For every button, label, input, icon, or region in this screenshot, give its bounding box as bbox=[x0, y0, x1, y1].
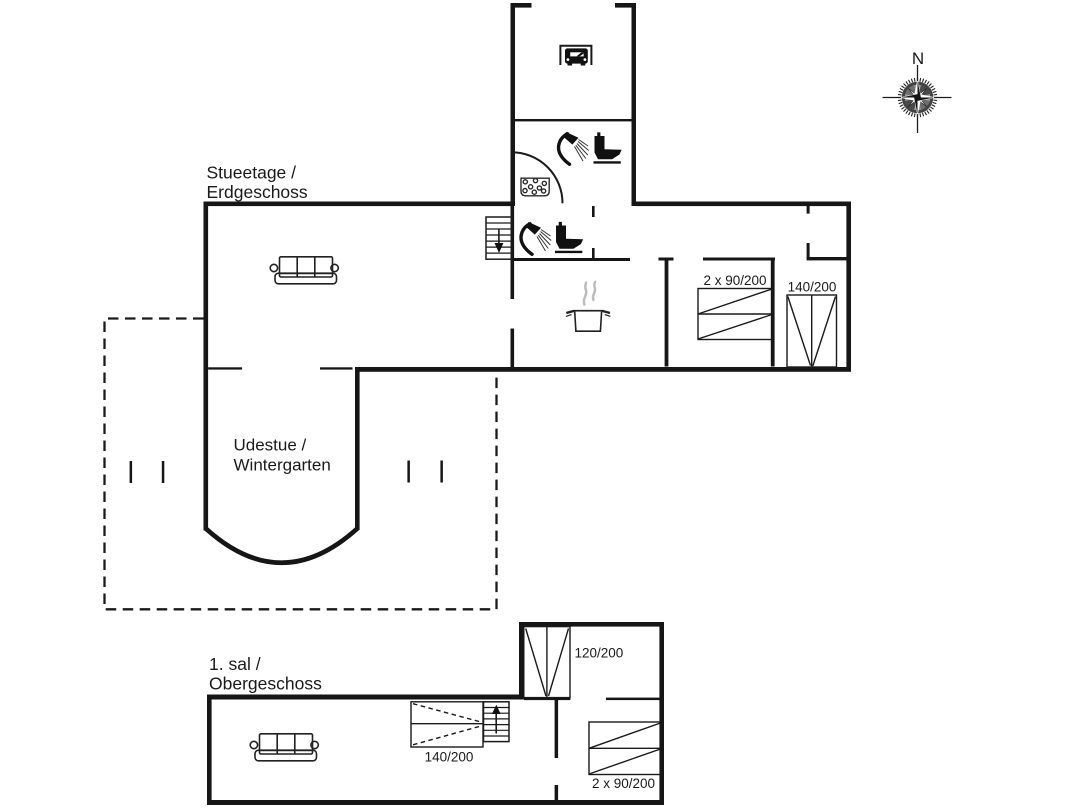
svg-text:120/200: 120/200 bbox=[575, 646, 624, 661]
svg-text:Erdgeschoss: Erdgeschoss bbox=[207, 182, 308, 202]
svg-text:2 x 90/200: 2 x 90/200 bbox=[592, 776, 655, 791]
svg-text:140/200: 140/200 bbox=[788, 279, 837, 294]
svg-text:Stueetage /: Stueetage / bbox=[207, 163, 297, 183]
svg-text:N: N bbox=[912, 49, 924, 68]
svg-text:Udestue /: Udestue / bbox=[234, 436, 307, 455]
svg-text:2 x 90/200: 2 x 90/200 bbox=[703, 273, 766, 288]
svg-text:1. sal /: 1. sal / bbox=[209, 654, 261, 674]
svg-text:Wintergarten: Wintergarten bbox=[234, 455, 331, 474]
svg-text:Obergeschoss: Obergeschoss bbox=[209, 673, 322, 693]
svg-text:140/200: 140/200 bbox=[425, 749, 474, 764]
